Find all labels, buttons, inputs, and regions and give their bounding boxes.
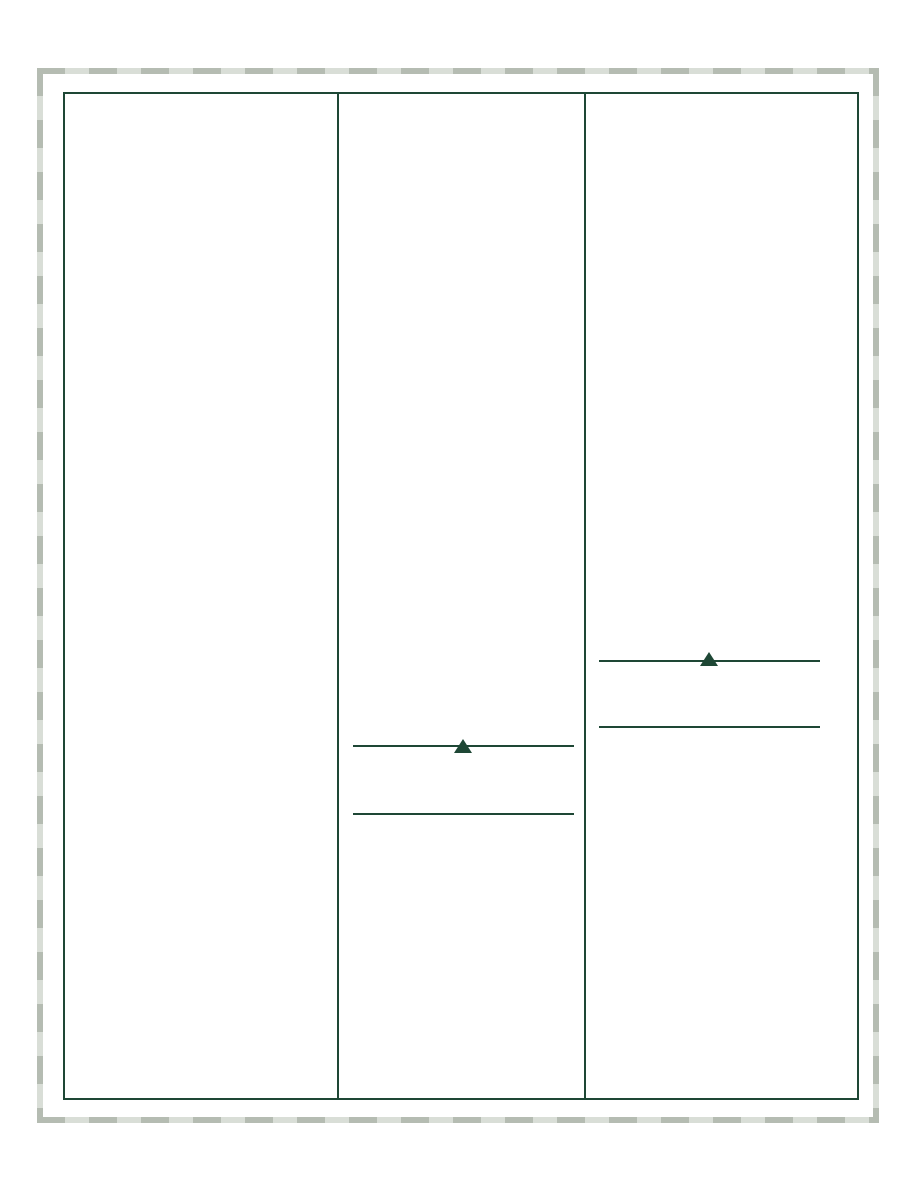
rule-line xyxy=(599,726,820,728)
fold-divider-left xyxy=(337,94,339,1098)
triangle-up-marker-icon xyxy=(454,739,472,753)
dashed-border-bottom xyxy=(37,1117,879,1123)
rule-line xyxy=(353,813,574,815)
fold-divider-right xyxy=(584,94,586,1098)
dashed-border-right xyxy=(873,68,879,1123)
dashed-border-top xyxy=(37,68,879,74)
triangle-up-marker-icon xyxy=(700,652,718,666)
dashed-border-left xyxy=(37,68,43,1123)
template-page: { "colors": { "page_background": "#fffff… xyxy=(0,0,918,1188)
trifold-panel xyxy=(63,92,859,1100)
